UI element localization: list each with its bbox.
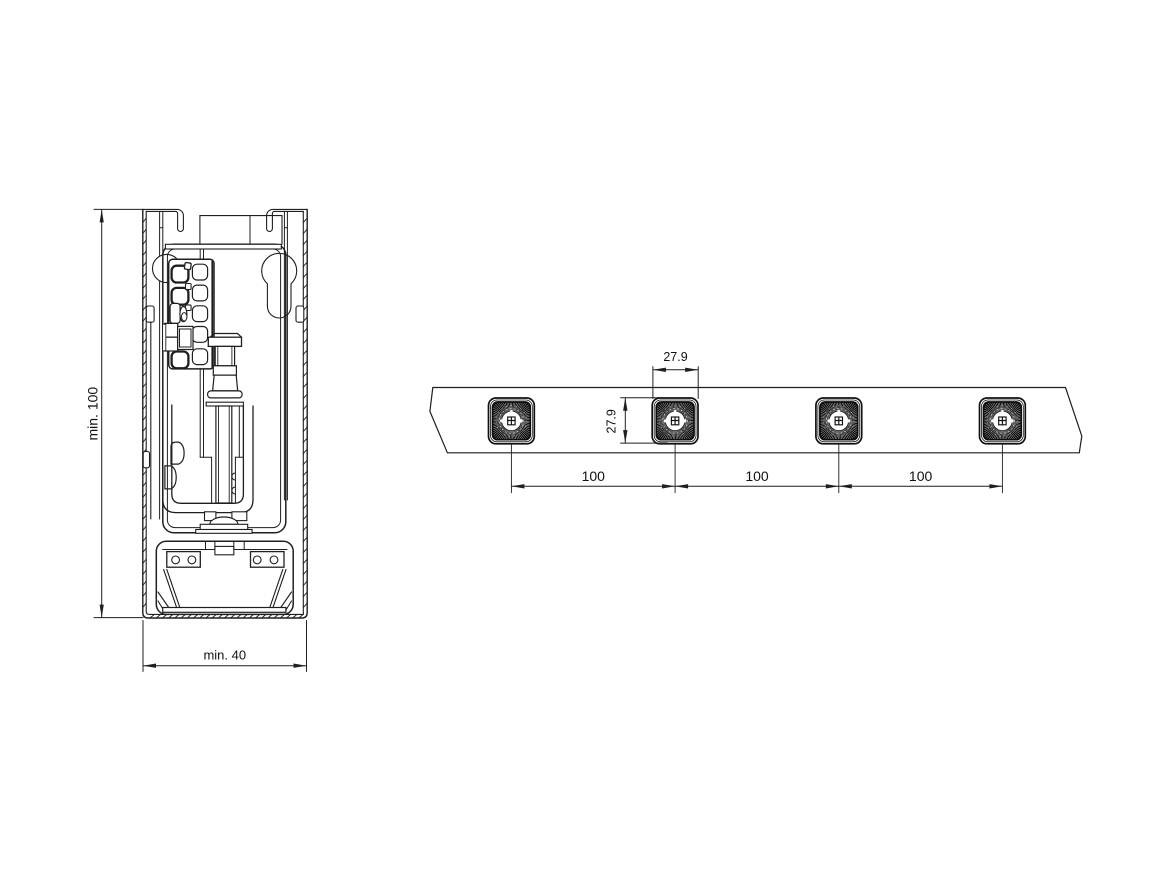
svg-text:100: 100 bbox=[745, 468, 769, 484]
svg-text:27.9: 27.9 bbox=[663, 350, 687, 364]
svg-text:100: 100 bbox=[909, 468, 933, 484]
svg-text:100: 100 bbox=[582, 468, 606, 484]
svg-text:min. 100: min. 100 bbox=[84, 387, 100, 441]
svg-text:min. 40: min. 40 bbox=[203, 648, 246, 663]
svg-text:27.9: 27.9 bbox=[604, 409, 618, 433]
